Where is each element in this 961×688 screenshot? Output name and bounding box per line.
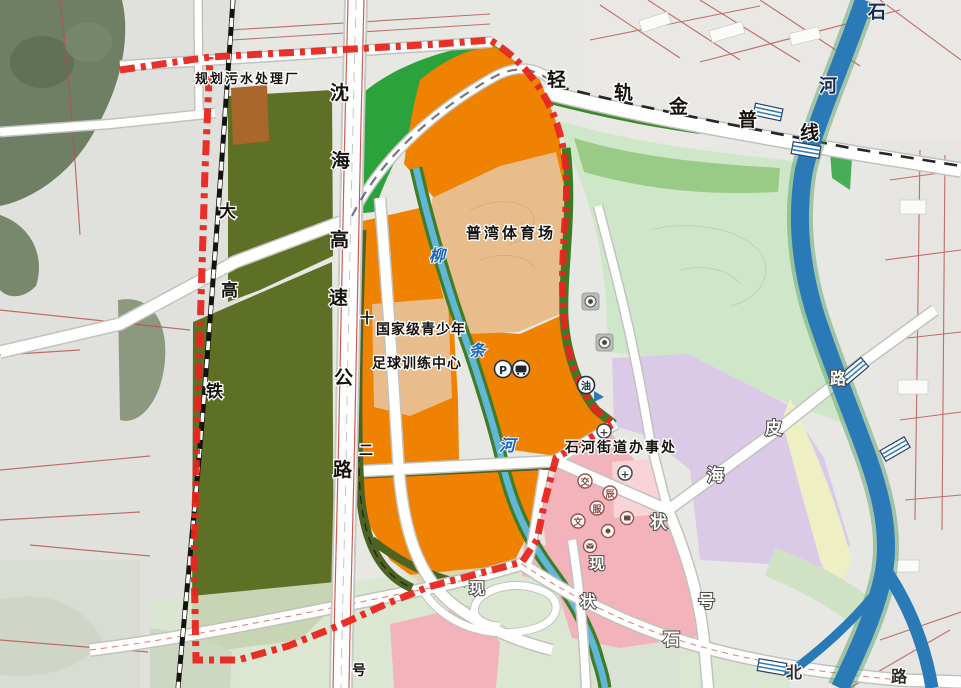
target-icon bbox=[602, 525, 615, 538]
map-label: 河 bbox=[819, 76, 837, 97]
map-label: 沈 bbox=[330, 81, 349, 104]
hospital-icon: + bbox=[618, 466, 632, 481]
viewpoint-icon-1 bbox=[582, 293, 599, 310]
map-label: 大 bbox=[219, 201, 236, 222]
service-icon-traffic: 交 bbox=[578, 474, 592, 488]
map-label: 普 bbox=[738, 108, 757, 131]
map-label: 海 bbox=[707, 465, 724, 486]
mail-icon bbox=[584, 540, 597, 553]
bus-icon bbox=[513, 361, 530, 378]
map-label: 金 bbox=[668, 95, 689, 118]
svg-text:辰: 辰 bbox=[605, 489, 615, 500]
map-label: 石河街道办事处 bbox=[564, 439, 677, 456]
map-label: 路 bbox=[891, 667, 908, 686]
map-label: 状 bbox=[580, 592, 597, 611]
map-canvas: P 油 + + 交 辰 bbox=[0, 0, 961, 688]
svg-text:文: 文 bbox=[572, 516, 583, 528]
map-label: 路 bbox=[830, 369, 847, 388]
map-label: 号 bbox=[698, 592, 715, 612]
map-label: 海 bbox=[331, 149, 350, 172]
map-label: 公 bbox=[334, 367, 353, 389]
map-label: 铁 bbox=[206, 381, 223, 402]
map-label: 轨 bbox=[614, 81, 633, 104]
planning-map[interactable]: P 油 + + 交 辰 bbox=[0, 0, 961, 688]
map-label: 足球训练中心 bbox=[372, 355, 462, 372]
map-label: 石 bbox=[867, 2, 886, 23]
service-icon-service: 服 bbox=[590, 501, 604, 515]
map-label: 条 bbox=[469, 341, 487, 360]
map-label: 线 bbox=[800, 121, 819, 144]
map-label: 轻 bbox=[547, 68, 566, 91]
parking-icon: P bbox=[495, 361, 512, 378]
map-label: 北 bbox=[786, 663, 802, 682]
map-label: 十 bbox=[360, 310, 374, 327]
service-icon-culture: 文 bbox=[571, 514, 585, 528]
map-label: 状 bbox=[650, 512, 668, 533]
clinic-glyph: + bbox=[599, 426, 608, 439]
service-icon-chen: 辰 bbox=[603, 486, 617, 500]
svg-text:服: 服 bbox=[592, 504, 602, 515]
sewage-plant-building bbox=[231, 85, 269, 145]
camera-icon bbox=[621, 512, 634, 525]
map-label: 国家级青少年 bbox=[376, 321, 466, 338]
parking-glyph: P bbox=[499, 364, 507, 377]
map-label: 现 bbox=[589, 554, 605, 573]
map-label: 高 bbox=[330, 228, 349, 251]
map-label: 规划污水处理厂 bbox=[195, 71, 300, 87]
map-label: 速 bbox=[329, 286, 348, 309]
map-label: 路 bbox=[333, 458, 353, 481]
map-label: 高 bbox=[221, 280, 238, 301]
map-label: 皮 bbox=[765, 418, 782, 439]
map-label: 普湾体育场 bbox=[466, 224, 556, 242]
map-label: 号 bbox=[352, 663, 366, 679]
hospital-glyph: + bbox=[620, 468, 629, 481]
gas-glyph: 油 bbox=[581, 380, 591, 393]
map-label: 二 bbox=[359, 443, 373, 459]
map-label: 石 bbox=[662, 630, 680, 650]
svg-text:交: 交 bbox=[580, 476, 589, 488]
viewpoint-icon-2 bbox=[596, 334, 613, 351]
map-label: 现 bbox=[469, 579, 485, 598]
clinic-icon: + bbox=[597, 424, 611, 439]
